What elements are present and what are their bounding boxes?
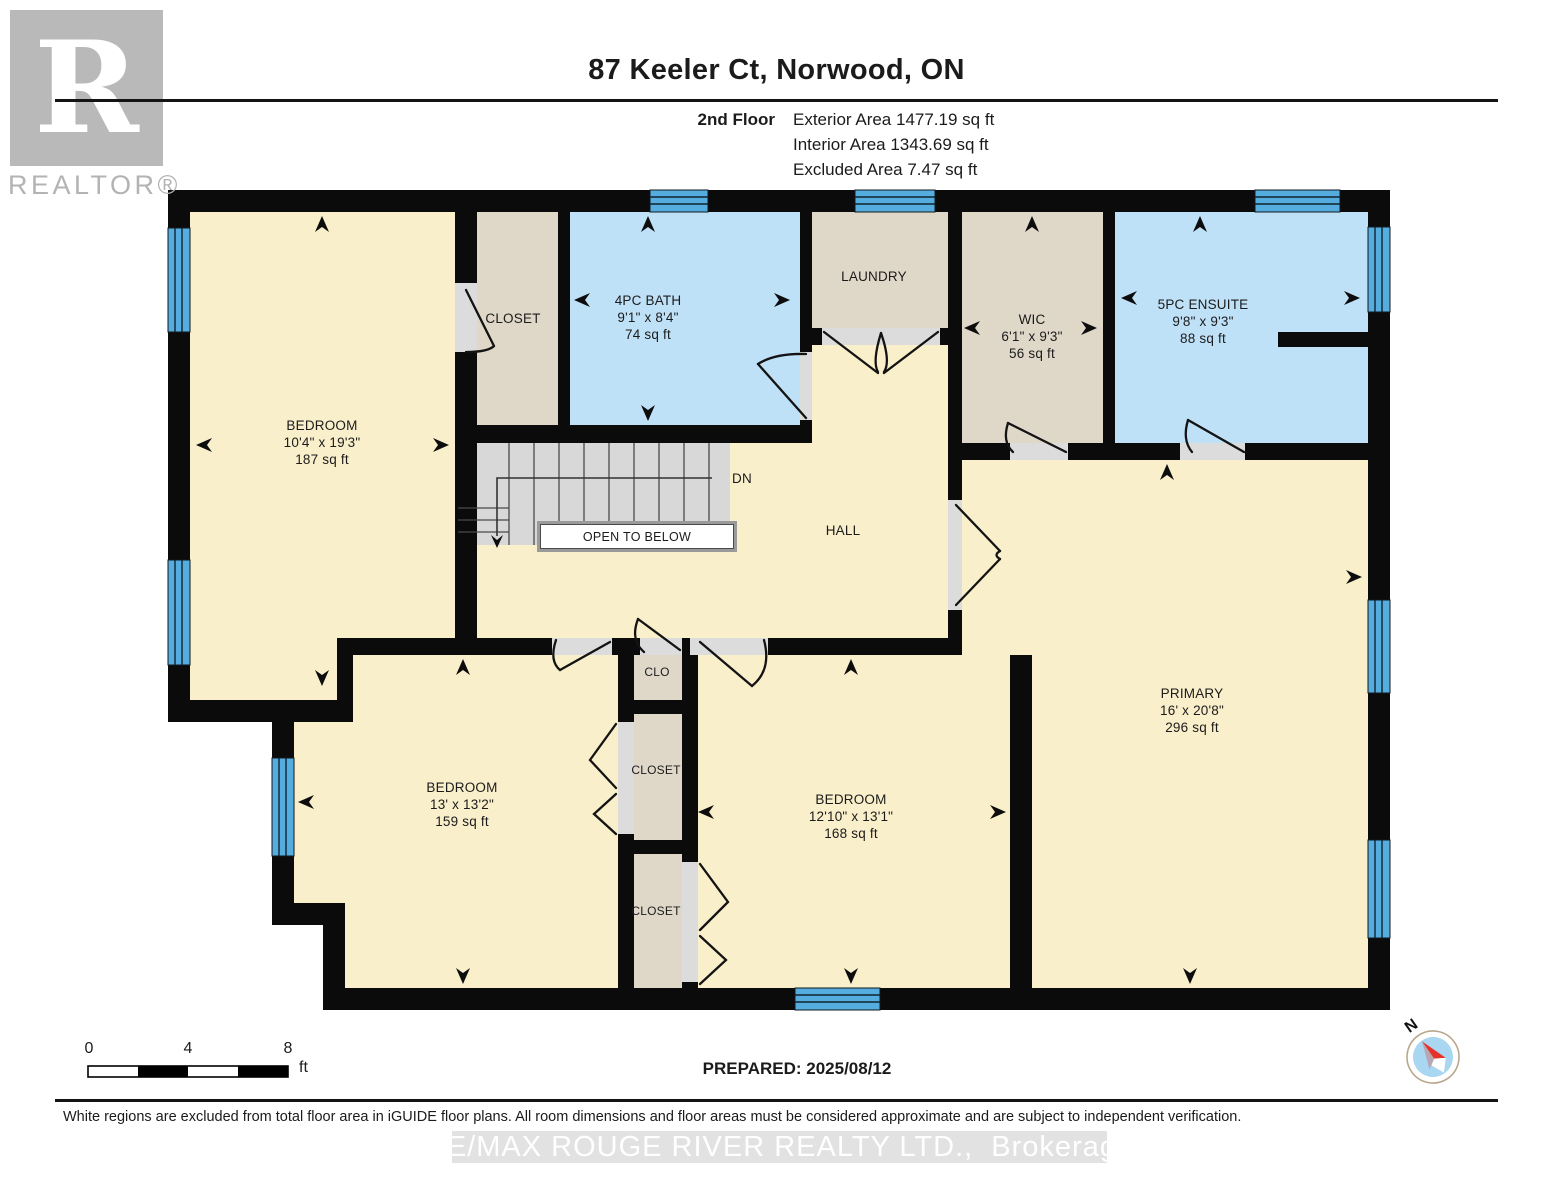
bedroom1-floor-lobe (190, 638, 337, 702)
room-dims: 9'8" x 9'3" (1158, 313, 1249, 330)
footer-divider (55, 1099, 1498, 1102)
open-to-below-box: OPEN TO BELOW (537, 521, 737, 552)
window (168, 560, 190, 665)
room-area: 159 sq ft (426, 813, 497, 830)
hall-label: HALL (826, 522, 861, 539)
room-area: 187 sq ft (284, 451, 361, 468)
interior-area: Interior Area 1343.69 sq ft (793, 135, 989, 155)
room-dims: 6'1" x 9'3" (1001, 328, 1062, 345)
excluded-area: Excluded Area 7.47 sq ft (793, 160, 977, 180)
brokerage-watermark-text: RE/MAX ROUGE RIVER REALTY LTD., Brokerag… (425, 1131, 1134, 1164)
floorplan-page: N R REALTOR® 87 Keeler Ct, Norwood, ON 2… (0, 0, 1553, 1200)
scale-tick-4: 4 (184, 1040, 193, 1058)
room-dims: 12'10" x 13'1" (809, 808, 893, 825)
closet-bot-floor (634, 854, 682, 988)
primary-label: PRIMARY 16' x 20'8" 296 sq ft (1160, 685, 1224, 736)
room-name: BEDROOM (284, 417, 361, 434)
laundry-label: LAUNDRY (841, 268, 907, 285)
clo-label: CLO (644, 664, 669, 681)
room-name: BEDROOM (426, 779, 497, 796)
realtor-logo-wordmark: REALTOR® (8, 170, 181, 201)
closet-mid-label: CLOSET (631, 762, 680, 779)
room-dims: 13' x 13'2" (426, 796, 497, 813)
window (1368, 600, 1390, 693)
open-to-below-label: OPEN TO BELOW (540, 524, 734, 549)
wic-label: WIC 6'1" x 9'3" 56 sq ft (1001, 311, 1062, 362)
room-area: 74 sq ft (615, 326, 682, 343)
closet-bot-label: CLOSET (631, 903, 680, 920)
window (1368, 227, 1390, 312)
bedroom1-label: BEDROOM 10'4" x 19'3" 187 sq ft (284, 417, 361, 468)
ensuite-label: 5PC ENSUITE 9'8" x 9'3" 88 sq ft (1158, 296, 1249, 347)
prepared-date: PREPARED: 2025/08/12 (703, 1059, 892, 1079)
scale-unit: ft (299, 1059, 308, 1077)
scale-bar (88, 1066, 288, 1077)
realtor-logo-r: R (34, 25, 139, 151)
bath-floor (570, 212, 800, 425)
primary-floor-upper (962, 460, 1368, 655)
window (1368, 840, 1390, 938)
disclaimer-text: White regions are excluded from total fl… (63, 1109, 1241, 1125)
window (272, 758, 294, 856)
room-dims: 9'1" x 8'4" (615, 309, 682, 326)
exterior-area: Exterior Area 1477.19 sq ft (793, 110, 994, 130)
floorplan-drawing: N (0, 0, 1553, 1200)
room-area: 296 sq ft (1160, 719, 1224, 736)
bath-label: 4PC BATH 9'1" x 8'4" 74 sq ft (615, 292, 682, 343)
brokerage-watermark: RE/MAX ROUGE RIVER REALTY LTD., Brokerag… (452, 1131, 1107, 1163)
room-dims: 16' x 20'8" (1160, 702, 1224, 719)
compass-north-label: N (1402, 1016, 1421, 1037)
realtor-logo: R (10, 10, 163, 166)
compass-icon: N (1385, 1004, 1469, 1093)
hall-upper-floor (800, 345, 948, 425)
room-name: 4PC BATH (615, 292, 682, 309)
window (168, 228, 190, 332)
window (855, 190, 935, 212)
room-area: 88 sq ft (1158, 330, 1249, 347)
page-title: 87 Keeler Ct, Norwood, ON (0, 54, 1553, 87)
room-name: WIC (1001, 311, 1062, 328)
window (650, 190, 708, 212)
floor-label: 2nd Floor (585, 110, 775, 130)
room-dims: 10'4" x 19'3" (284, 434, 361, 451)
window (795, 988, 880, 1010)
dn-label: DN (732, 470, 752, 487)
header-divider (55, 99, 1498, 102)
room-area: 168 sq ft (809, 825, 893, 842)
room-name: BEDROOM (809, 791, 893, 808)
scale-tick-0: 0 (85, 1040, 94, 1058)
room-name: 5PC ENSUITE (1158, 296, 1249, 313)
bedroom3-label: BEDROOM 12'10" x 13'1" 168 sq ft (809, 791, 893, 842)
room-name: PRIMARY (1160, 685, 1224, 702)
room-area: 56 sq ft (1001, 345, 1062, 362)
bedroom2-label: BEDROOM 13' x 13'2" 159 sq ft (426, 779, 497, 830)
closet-top-label: CLOSET (485, 310, 540, 327)
scale-tick-8: 8 (284, 1040, 293, 1058)
window (1255, 190, 1340, 212)
